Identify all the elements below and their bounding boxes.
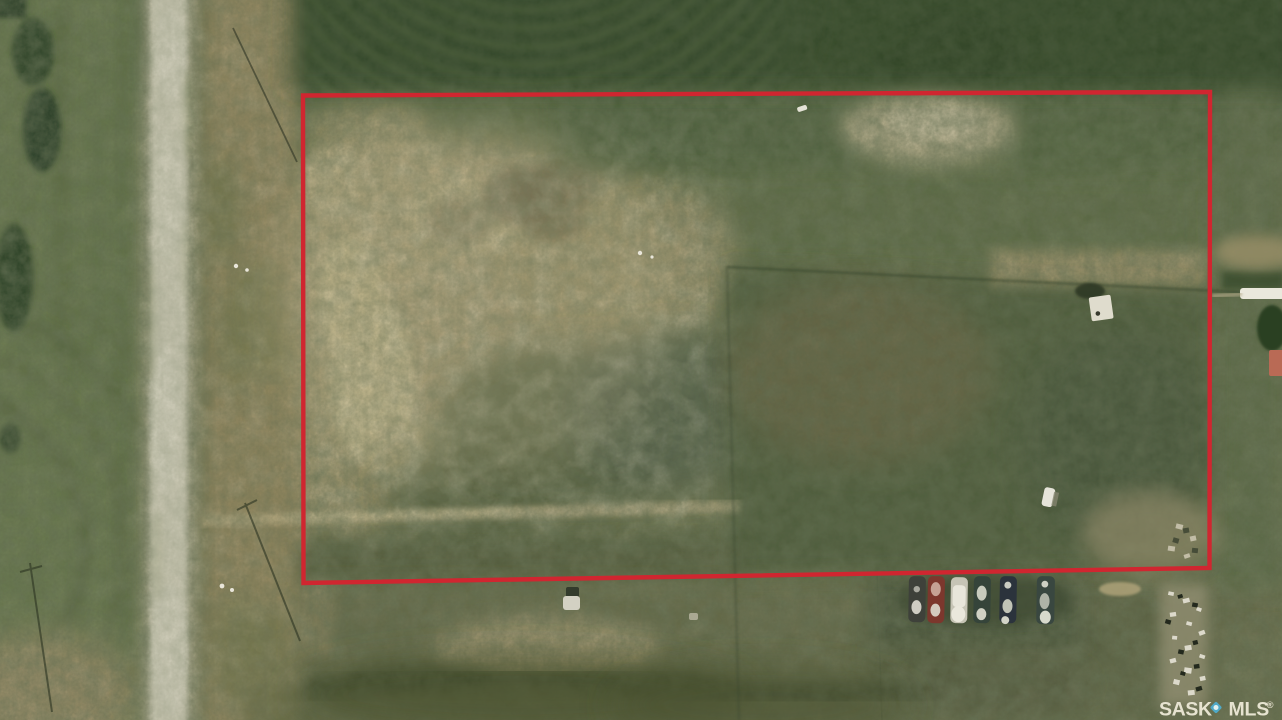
- svg-text:®: ®: [1267, 700, 1274, 711]
- svg-text:SASK: SASK: [1159, 699, 1212, 720]
- svg-text:MLS: MLS: [1229, 699, 1270, 720]
